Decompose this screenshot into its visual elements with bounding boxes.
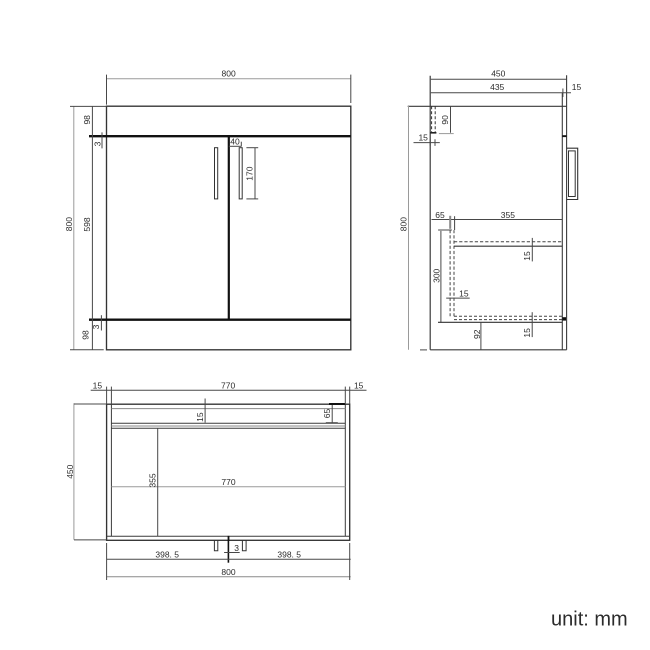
- svg-text:800: 800: [221, 567, 235, 577]
- svg-text:800: 800: [64, 217, 74, 231]
- svg-text:15: 15: [522, 328, 532, 338]
- svg-text:398. 5: 398. 5: [155, 549, 179, 559]
- svg-text:15: 15: [418, 132, 428, 142]
- svg-text:40: 40: [230, 136, 240, 146]
- svg-text:15: 15: [459, 289, 469, 299]
- svg-text:450: 450: [65, 464, 75, 478]
- svg-text:598: 598: [82, 217, 92, 231]
- svg-text:770: 770: [221, 381, 235, 391]
- svg-text:98: 98: [81, 330, 91, 340]
- svg-text:15: 15: [572, 82, 582, 92]
- svg-text:300: 300: [431, 268, 441, 282]
- svg-text:98: 98: [82, 115, 92, 125]
- svg-text:170: 170: [244, 166, 254, 180]
- svg-text:800: 800: [399, 217, 409, 231]
- svg-text:3: 3: [93, 141, 103, 146]
- svg-text:15: 15: [522, 251, 532, 261]
- svg-text:770: 770: [221, 477, 235, 487]
- svg-text:92: 92: [472, 329, 482, 339]
- svg-text:800: 800: [222, 69, 236, 79]
- svg-text:65: 65: [435, 210, 445, 220]
- svg-text:90: 90: [440, 115, 450, 125]
- svg-text:unit: mm: unit: mm: [551, 609, 628, 631]
- svg-text:450: 450: [491, 69, 505, 79]
- svg-text:15: 15: [195, 412, 205, 422]
- svg-text:15: 15: [354, 381, 364, 391]
- svg-text:435: 435: [490, 82, 504, 92]
- svg-text:355: 355: [148, 473, 158, 487]
- svg-text:65: 65: [322, 409, 332, 419]
- svg-text:355: 355: [501, 210, 515, 220]
- svg-text:3: 3: [234, 543, 239, 553]
- svg-text:15: 15: [93, 381, 103, 391]
- svg-text:398. 5: 398. 5: [277, 549, 301, 559]
- svg-text:3: 3: [91, 324, 101, 329]
